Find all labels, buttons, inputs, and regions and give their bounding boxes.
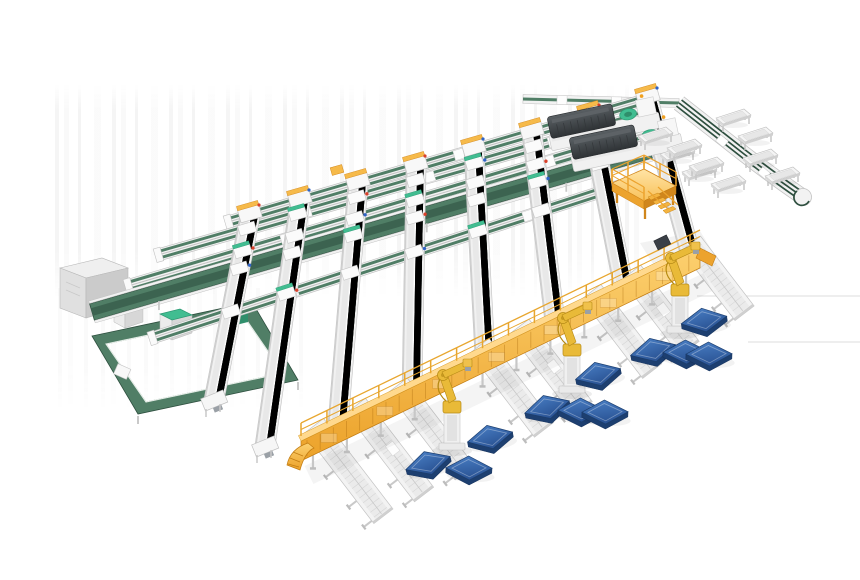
carriage	[557, 95, 567, 104]
tray-stand	[711, 175, 746, 198]
warehouse-3d-scene	[0, 0, 860, 580]
factory-render-canvas	[0, 0, 860, 580]
conveyor-line	[89, 139, 653, 323]
pallet	[465, 421, 518, 458]
accent-marker	[330, 165, 344, 176]
